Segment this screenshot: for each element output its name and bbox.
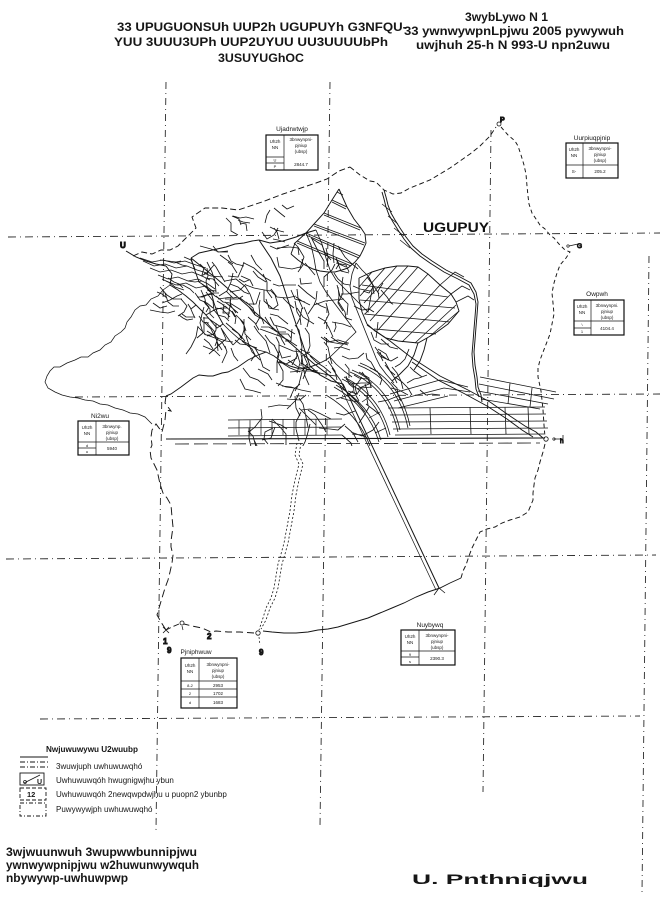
svg-text:pjniup: pjniup [106, 430, 119, 435]
svg-text:Uwhuwuwqóh hwugnigwjhu ybun: Uwhuwuwqóh hwugnigwjhu ybun [56, 776, 174, 785]
svg-text:(ubsp): (ubsp) [601, 315, 614, 320]
svg-text:UGUPUY: UGUPUY [423, 220, 489, 235]
svg-text:Owpwh: Owpwh [586, 291, 608, 298]
svg-text:u: u [86, 449, 88, 454]
svg-text:(ubsp): (ubsp) [594, 158, 607, 163]
svg-text:3wuwjuph uwhuwuwqhó: 3wuwjuph uwhuwuwqhó [56, 762, 143, 771]
svg-text:NN: NN [571, 153, 578, 158]
svg-text:Puwywywjph uwhuwuwqhó: Puwywywjph uwhuwuwqhó [56, 805, 153, 814]
svg-text:uwjhuh 25-h N 993-U npn2uwu: uwjhuh 25-h N 993-U npn2uwu [416, 38, 610, 52]
svg-text:h: h [560, 438, 564, 445]
svg-text:P: P [500, 117, 505, 124]
svg-text:8-2: 8-2 [187, 683, 194, 688]
svg-text:s: s [409, 659, 411, 664]
svg-text:NN: NN [272, 145, 279, 150]
svg-text:P: P [274, 164, 277, 169]
svg-text:pjniup: pjniup [594, 152, 607, 157]
svg-text:3bnwynp.: 3bnwynp. [102, 424, 121, 429]
svg-text:1702: 1702 [213, 691, 224, 696]
svg-text:3wybLywo N 1: 3wybLywo N 1 [465, 10, 548, 24]
svg-text:3bnwynpni-: 3bnwynpni- [206, 662, 230, 667]
svg-text:U: U [274, 158, 277, 163]
svg-text:pjniup: pjniup [212, 668, 225, 673]
svg-text:U: U [37, 779, 42, 786]
svg-text:33 UPUGUONSUh UUP2h UGUPUYh G3: 33 UPUGUONSUh UUP2h UGUPUYh G3NFQU- [117, 20, 407, 34]
svg-text:3wjwuunwuh 3wupwwbunnipjwu: 3wjwuunwuh 3wupwwbunnipjwu [6, 845, 197, 859]
svg-text:(ubsp): (ubsp) [295, 149, 308, 154]
svg-text:12: 12 [27, 790, 35, 799]
svg-text:Pjniphwuw: Pjniphwuw [180, 649, 211, 656]
svg-text:NN: NN [84, 431, 91, 436]
svg-text:ywnwywpnipjwu w2huwunwywquh: ywnwywpnipjwu w2huwunwywquh [6, 858, 199, 872]
svg-text:3bnwynpni-: 3bnwynpni- [588, 146, 612, 151]
svg-text:d: d [189, 700, 191, 705]
svg-text:S-: S- [572, 169, 577, 174]
svg-text:9: 9 [259, 648, 264, 657]
svg-text:205.2: 205.2 [594, 169, 606, 174]
svg-text:Uh2h: Uh2h [569, 147, 580, 152]
svg-text:4104.4: 4104.4 [600, 326, 614, 331]
svg-text:NN: NN [407, 640, 414, 645]
svg-text:NN: NN [187, 669, 194, 674]
svg-text:2953: 2953 [213, 683, 224, 688]
svg-text:3USUYUGhOC: 3USUYUGhOC [218, 51, 304, 65]
svg-text:1683: 1683 [213, 700, 224, 705]
svg-text:Uh2h: Uh2h [82, 425, 93, 430]
svg-text:(ubsp): (ubsp) [106, 436, 119, 441]
svg-text:pjniup: pjniup [601, 309, 614, 314]
svg-text:3bnwynpni-: 3bnwynpni- [289, 137, 313, 142]
svg-text:U: U [120, 241, 126, 250]
svg-text:G: G [577, 243, 582, 250]
svg-text:(ubsp): (ubsp) [431, 645, 444, 650]
svg-text:(ubsp): (ubsp) [212, 674, 225, 679]
svg-text:Uurpiuqpjnip: Uurpiuqpjnip [574, 135, 611, 142]
svg-text:pjniup: pjniup [431, 639, 444, 644]
svg-text:Nwjuwuwywu U2wuubp: Nwjuwuwywu U2wuubp [46, 744, 138, 754]
svg-text:1: 1 [163, 637, 168, 646]
svg-text:33 ywnwywpnLpjwu 2005 pywywuh: 33 ywnwywpnLpjwu 2005 pywywuh [404, 24, 624, 38]
svg-text:2390.3: 2390.3 [430, 656, 444, 661]
svg-text:3bnwynpni-: 3bnwynpni- [425, 633, 449, 638]
svg-text:2: 2 [207, 632, 212, 641]
svg-text:d: d [86, 443, 88, 448]
svg-text:pjniup: pjniup [295, 143, 308, 148]
svg-text:Ujadrwtwjp: Ujadrwtwjp [276, 126, 308, 133]
svg-text:2844.7: 2844.7 [294, 162, 308, 167]
svg-text:Ni2wu: Ni2wu [91, 413, 109, 420]
svg-text:Uh2h: Uh2h [185, 663, 196, 668]
svg-text:Uh2h: Uh2h [270, 139, 281, 144]
svg-text:5940: 5940 [107, 446, 118, 451]
svg-text:YUU 3UUU3UPh UUP2UYUU UU3UUU: YUU 3UUU3UPh UUP2UYUU UU3UUUUbPh [114, 35, 388, 49]
svg-text:Uh2h: Uh2h [405, 634, 416, 639]
svg-text:Uh2h: Uh2h [577, 304, 588, 309]
svg-text:9: 9 [167, 646, 172, 655]
svg-text:U. Pnthniqjwu: U. Pnthniqjwu [412, 871, 588, 887]
svg-text:3bnwynpni.: 3bnwynpni. [596, 303, 619, 308]
svg-text:Uwhuwuwqóh 2newqwpdwjhu u puop: Uwhuwuwqóh 2newqwpdwjhu u puopn2 ybunbp [56, 790, 227, 799]
svg-text:NN: NN [579, 310, 586, 315]
svg-text:nbywywp-uwhuwpwp: nbywywp-uwhuwpwp [6, 871, 128, 885]
svg-text:Nuybywq: Nuybywq [417, 622, 444, 629]
